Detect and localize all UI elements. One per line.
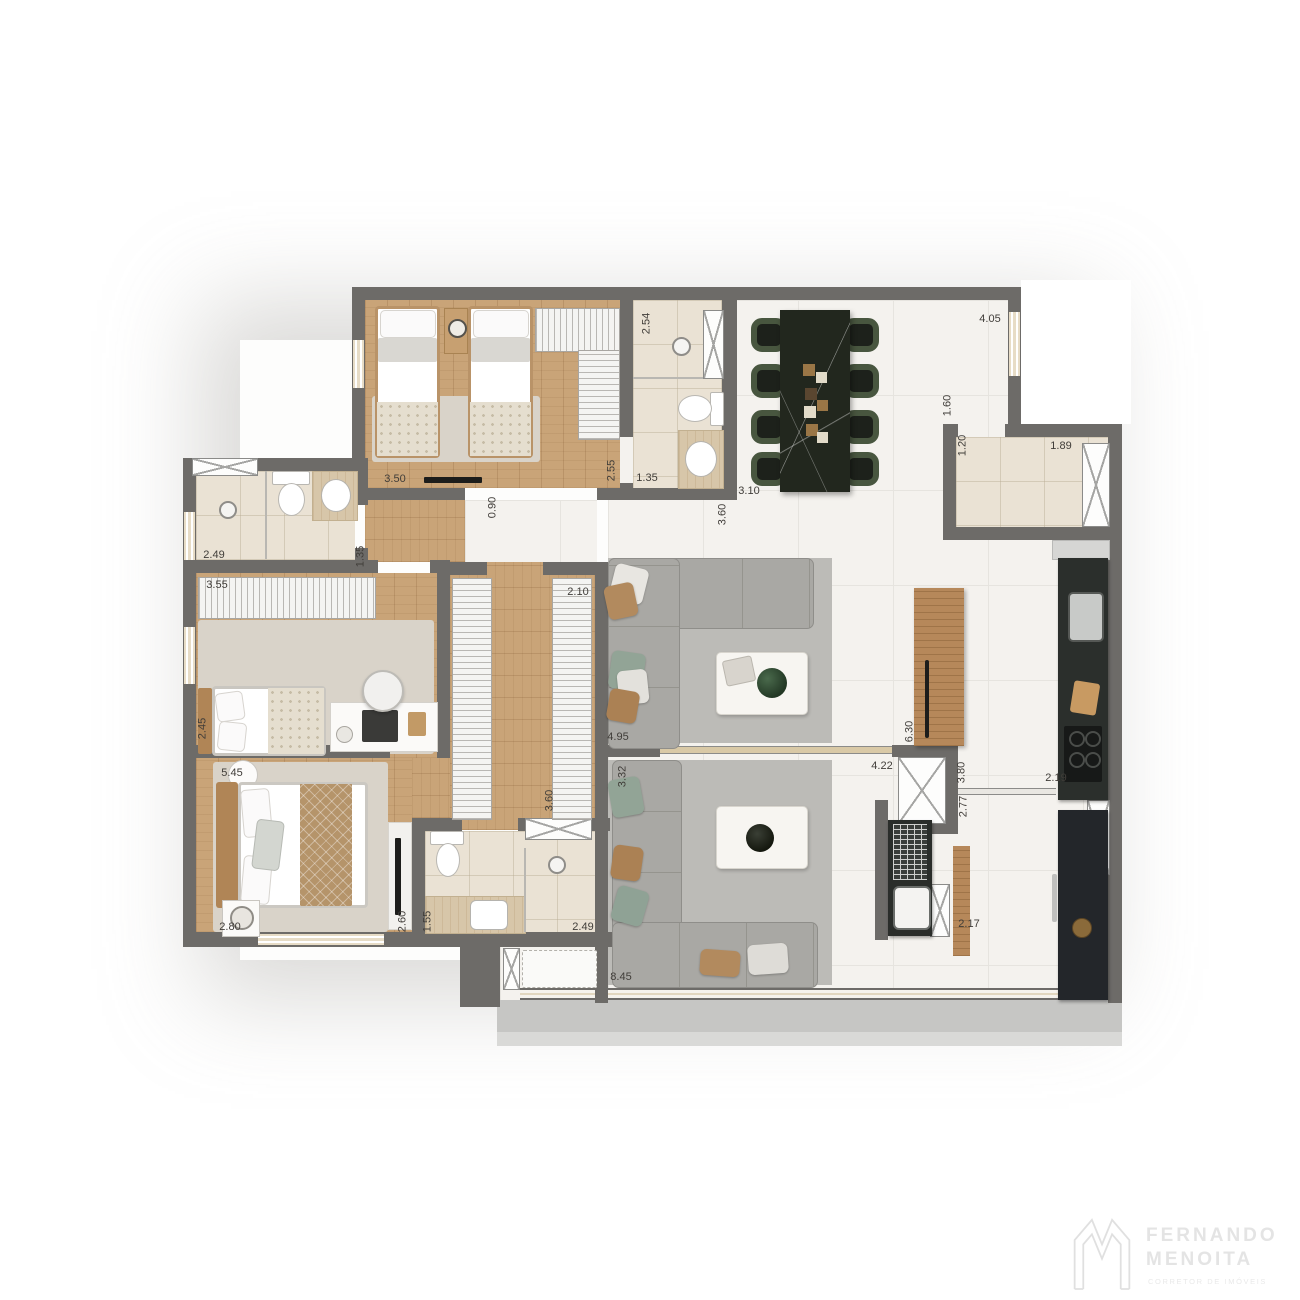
window-bath2 <box>184 512 195 560</box>
twin-bed-2-duvet <box>470 402 531 456</box>
sliding-door-kitchen <box>958 788 1056 795</box>
dim-powder-width: 1.89 <box>1043 440 1079 453</box>
floor-entry-nook <box>465 500 597 562</box>
dim-kitchen-depth: 3.80 <box>956 755 969 791</box>
sofa1-pillow-brown <box>605 688 640 725</box>
dim-bedroom2-depth: 2.45 <box>197 711 210 747</box>
floor-master-corridor <box>412 758 450 818</box>
dim-walkin-depth: 3.60 <box>544 783 557 819</box>
dim-bath1-width: 1.35 <box>629 472 665 485</box>
laptop-icon <box>362 710 398 742</box>
twin-tv <box>424 477 482 483</box>
bath3-sink-icon <box>470 900 508 930</box>
service-board <box>953 846 970 956</box>
dim-bath3-width: 1.55 <box>422 904 435 940</box>
shaft-bath2 <box>192 458 258 476</box>
bath2-toilet-icon <box>278 483 305 516</box>
wall-bath1-right <box>722 287 737 500</box>
kettle-icon <box>1072 918 1092 938</box>
bedroom2-duvet <box>268 688 324 754</box>
wall-powder-top-b <box>1005 424 1122 437</box>
ac-unit <box>522 950 597 988</box>
dim-service-width: 2.17 <box>951 918 987 931</box>
wall-walkin-top-a <box>438 562 487 575</box>
dim-terrace-window: 4.05 <box>972 313 1008 326</box>
bath3-shower-glass <box>524 848 526 932</box>
dim-master-width: 2.80 <box>212 921 248 934</box>
twin-nightstand-clock <box>448 319 467 338</box>
plant-icon <box>757 668 787 698</box>
dim-twin-depth: 2.55 <box>606 453 619 489</box>
brand-name-line1: FERNANDO <box>1146 1225 1278 1247</box>
dim-walkin-width: 2.10 <box>560 586 596 599</box>
dim-living2-depth: 3.32 <box>617 759 630 795</box>
shaft-powder <box>1082 443 1110 527</box>
dim-closet2-width: 3.55 <box>199 579 235 592</box>
dim-bath2-width: 2.49 <box>196 549 232 562</box>
balcony-glass-doors <box>520 988 1108 1000</box>
bath2-sink-icon <box>321 479 351 512</box>
exterior-patch <box>1021 280 1131 424</box>
bath2-shower-head-icon <box>219 501 237 519</box>
bath1-shower-head-icon <box>672 337 691 356</box>
plant2-icon <box>746 824 774 852</box>
kitchen-tall-cabinet <box>1058 810 1108 1000</box>
burner-1 <box>1069 731 1085 747</box>
island-handle <box>925 660 929 738</box>
master-throw <box>300 784 352 906</box>
balcony-slab <box>497 1000 1122 1032</box>
bedroom2-pillow-2 <box>217 721 248 753</box>
wall-powder-left <box>943 437 956 540</box>
dim-bath1-depth: 2.54 <box>641 306 654 342</box>
dining-decor-1 <box>803 364 815 376</box>
dim-kitchen-width: 4.22 <box>864 760 900 773</box>
bath1-shower-glass <box>633 377 703 379</box>
dim-bath3-depth: 2.49 <box>565 921 601 934</box>
dining-decor-5 <box>817 400 828 411</box>
dim-living-side: 1.60 <box>942 388 955 424</box>
dim-master-length: 5.45 <box>214 767 250 780</box>
kitchen-sink-icon <box>1068 592 1104 642</box>
dim-service-depth: 2.77 <box>958 789 971 825</box>
bath3-shower-head-icon <box>548 856 566 874</box>
brand-tagline: CORRETOR DE IMÓVEIS <box>1148 1277 1267 1286</box>
cutting-board-icon <box>1070 680 1101 716</box>
brand-m-logo-icon <box>1066 1211 1138 1295</box>
twin-bed-1-duvet <box>377 402 438 456</box>
dining-decor-7 <box>817 432 828 443</box>
dining-decor-3 <box>805 388 817 400</box>
wall-bath1-left-a <box>620 300 633 437</box>
wall-top-outer <box>352 287 1021 300</box>
dim-kitchen-island: 6.30 <box>904 714 917 750</box>
desk-chair-icon <box>362 670 404 712</box>
wall-walkin-top-b <box>543 562 597 575</box>
bath1-toilet-icon <box>678 395 712 422</box>
floor-plan: 3.50 2.55 2.54 1.35 0.90 3.10 3.60 4.05 … <box>0 0 1300 1300</box>
sofa2-pillow-white <box>747 943 789 976</box>
dim-kitchen-counter: 2.19 <box>1038 772 1074 785</box>
wall-balcony-stub <box>460 933 500 1007</box>
wall-twin-bottom <box>352 488 465 500</box>
cabinet-handle <box>1052 874 1057 922</box>
dim-twin-width: 3.50 <box>377 473 413 486</box>
dim-powder-depth: 1.20 <box>957 428 970 464</box>
master-headboard <box>216 782 238 908</box>
bath2-shower-glass <box>265 471 267 559</box>
shaft-bath3 <box>525 818 592 840</box>
dim-balcony-width: 8.45 <box>603 971 639 984</box>
walkin-wardrobe-right <box>552 578 592 820</box>
wall-living-divider-right <box>892 745 950 757</box>
drying-rack-icon <box>893 824 927 880</box>
twin-bed-1-blanket <box>378 338 437 362</box>
brand-name-line2: MENOITA <box>1146 1249 1253 1271</box>
brand-watermark: FERNANDO MENOITA CORRETOR DE IMÓVEIS <box>1058 1205 1298 1300</box>
dining-decor-4 <box>804 406 816 418</box>
wall-bedroom2-right <box>437 560 450 758</box>
dim-dining-depth: 3.60 <box>717 497 730 533</box>
bedroom2-pillow-1 <box>214 690 246 723</box>
shaft-balcony <box>503 948 520 990</box>
bedroom2-desk-lamp <box>336 726 353 743</box>
twin-wardrobe-side <box>578 350 620 440</box>
balcony-edge <box>497 1032 1122 1046</box>
twin-bed-1-pillow <box>380 310 436 338</box>
wall-powder-bottom <box>943 527 1122 540</box>
sliding-door-living <box>660 746 892 754</box>
burner-2 <box>1085 731 1101 747</box>
kitchen-appliance <box>1052 540 1110 560</box>
kitchen-island <box>914 588 964 746</box>
dim-living1-width: 4.95 <box>600 731 636 744</box>
wall-right-outer <box>1108 424 1122 1003</box>
burner-4 <box>1085 752 1101 768</box>
sofa2-pillow-tan <box>699 949 741 978</box>
twin-bed-2-pillow <box>473 310 529 338</box>
dim-dining-width: 3.10 <box>731 485 767 498</box>
bath3-toilet-icon <box>436 843 460 877</box>
window-master-bedroom <box>258 934 384 945</box>
dining-table <box>780 310 850 492</box>
dim-master-side: 2.60 <box>397 904 410 940</box>
wall-service-left <box>875 800 888 940</box>
dining-decor-2 <box>816 372 827 383</box>
laundry-sink-icon <box>893 886 931 930</box>
shaft-bath1 <box>703 310 724 379</box>
bath1-sink-icon <box>685 441 717 477</box>
bath1-toilet-tank <box>710 392 724 426</box>
twin-bed-2-blanket <box>471 338 530 362</box>
dim-hall-width: 0.90 <box>487 490 500 526</box>
sofa2-pillow-brown <box>610 844 644 882</box>
window-bedroom2 <box>184 627 195 684</box>
burner-3 <box>1069 752 1085 768</box>
bedroom2-notebook <box>408 712 426 736</box>
shaft-service <box>930 884 950 937</box>
elevator-shaft <box>898 757 946 824</box>
twin-wardrobe-top <box>535 308 620 352</box>
dim-bath2-depth: 1.35 <box>355 539 368 575</box>
window-twin-bedroom <box>353 340 364 388</box>
walkin-wardrobe-left <box>452 578 492 820</box>
window-terrace <box>1009 312 1020 376</box>
wall-bedroom2-top-b <box>430 560 437 573</box>
